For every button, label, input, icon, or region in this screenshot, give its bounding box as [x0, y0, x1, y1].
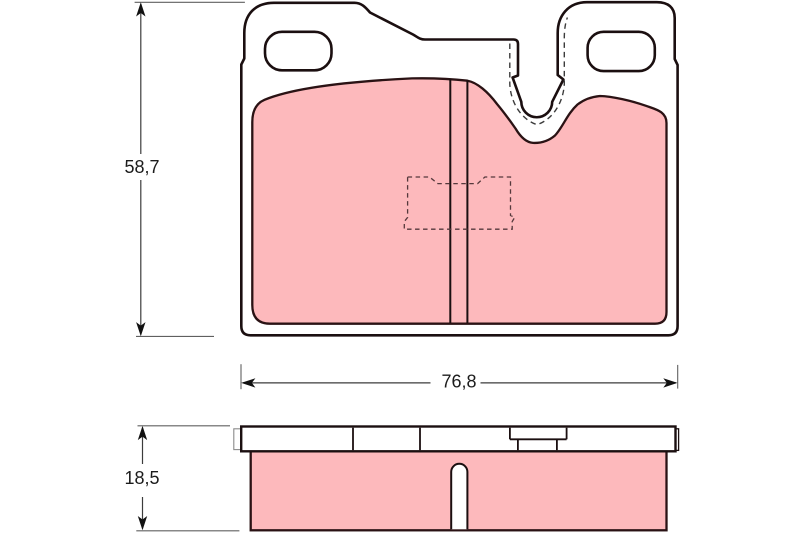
svg-text:18,5: 18,5: [124, 468, 159, 488]
svg-text:76,8: 76,8: [441, 372, 476, 392]
svg-text:58,7: 58,7: [124, 157, 159, 177]
